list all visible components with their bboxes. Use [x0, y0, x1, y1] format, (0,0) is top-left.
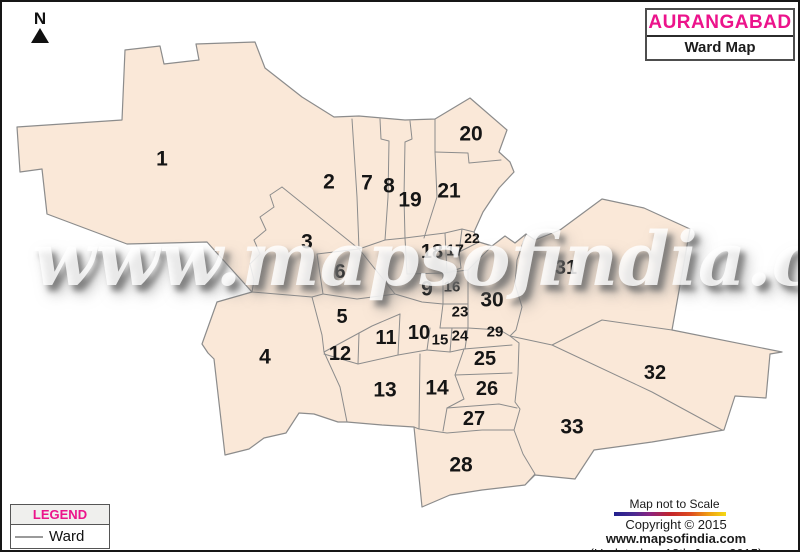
ward-label-14: 14: [425, 377, 449, 400]
scale-note: Map not to Scale: [607, 497, 742, 511]
ward-label-18: 18: [421, 241, 443, 263]
copyright-text: Copyright © 2015: [625, 517, 726, 532]
legend-box: LEGEND Ward: [10, 504, 110, 549]
updated-date: (Updated on 18th June, 2015): [554, 547, 798, 552]
ward-label-25: 25: [474, 348, 496, 370]
ward-label-12: 12: [329, 343, 351, 365]
ward-label-11: 11: [375, 327, 396, 349]
ward-label-7: 7: [361, 172, 373, 195]
ward-label-21: 21: [437, 180, 461, 203]
ward-label-15: 15: [432, 332, 449, 349]
ward-label-9: 9: [421, 278, 433, 301]
ward-label-16: 16: [444, 279, 461, 296]
ward-label-17: 17: [446, 243, 464, 260]
ward-label-23: 23: [452, 304, 469, 321]
scale-gradient-bar: [614, 512, 726, 516]
ward-label-26: 26: [476, 378, 498, 400]
aurangabad-ward-map: 1234567891011121314151617181920212223242…: [2, 2, 800, 552]
legend-item-label: Ward: [49, 528, 84, 545]
legend-item-ward: Ward: [11, 525, 109, 548]
ward-label-1: 1: [156, 148, 168, 171]
ward-label-30: 30: [480, 289, 503, 312]
ward-label-10: 10: [408, 322, 430, 344]
ward-label-8: 8: [383, 175, 395, 198]
ward-label-20: 20: [459, 123, 482, 146]
ward-label-13: 13: [373, 379, 396, 402]
ward-label-22: 22: [464, 230, 480, 246]
ward-label-2: 2: [323, 171, 335, 194]
ward-label-31: 31: [555, 257, 577, 279]
ward-label-6: 6: [334, 261, 345, 283]
ward-line-icon: [15, 536, 43, 538]
map-canvas: N AURANGABAD Ward Map: [0, 0, 800, 552]
ward-label-27: 27: [463, 408, 485, 430]
copyright-block: Copyright © 2015 www.mapsofindia.com (Up…: [554, 518, 798, 552]
ward-label-29: 29: [487, 324, 504, 341]
ward-label-24: 24: [452, 328, 469, 345]
ward-label-33: 33: [560, 416, 583, 439]
ward-label-28: 28: [449, 454, 473, 477]
ward-label-3: 3: [301, 231, 313, 254]
city-outline: [17, 42, 782, 507]
legend-header: LEGEND: [11, 505, 109, 525]
ward-label-4: 4: [259, 346, 271, 369]
ward-label-32: 32: [644, 362, 666, 384]
ward-label-19: 19: [398, 189, 421, 212]
copyright-site: www.mapsofindia.com: [606, 531, 746, 546]
ward-label-5: 5: [336, 306, 347, 328]
